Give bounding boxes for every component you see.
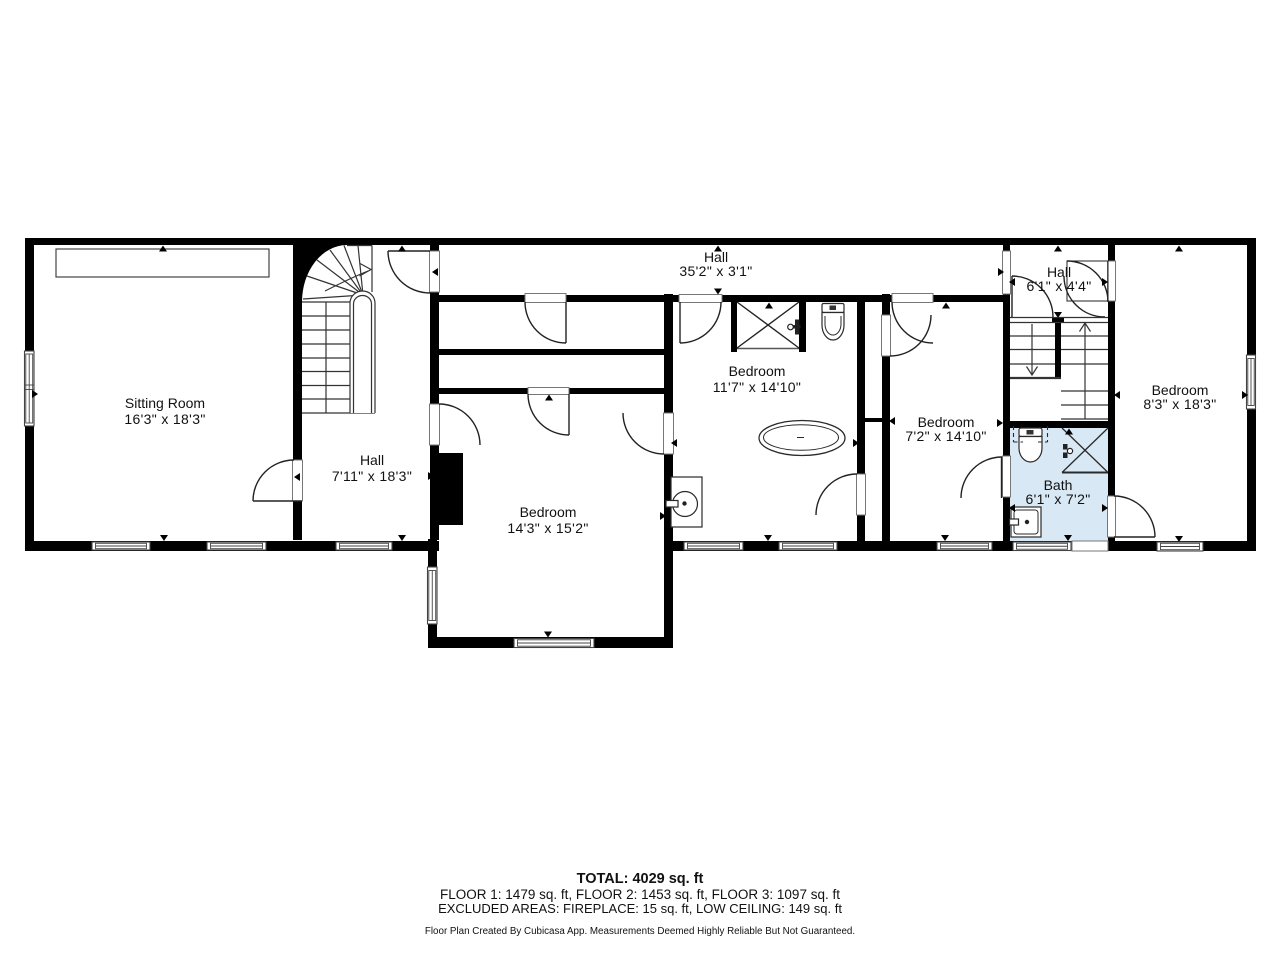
svg-text:14'3" x 15'2": 14'3" x 15'2" xyxy=(507,520,588,536)
svg-text:Hall: Hall xyxy=(360,452,384,468)
svg-text:16'3" x 18'3": 16'3" x 18'3" xyxy=(124,411,205,427)
svg-text:35'2" x 3'1": 35'2" x 3'1" xyxy=(679,263,752,279)
svg-text:7'2" x 14'10": 7'2" x 14'10" xyxy=(905,428,986,444)
svg-text:TOTAL: 4029 sq. ft: TOTAL: 4029 sq. ft xyxy=(577,871,704,887)
svg-text:EXCLUDED AREAS: FIREPLACE: 15: EXCLUDED AREAS: FIREPLACE: 15 sq. ft, LO… xyxy=(438,901,842,916)
svg-text:Bedroom: Bedroom xyxy=(520,504,577,520)
svg-text:11'7" x 14'10": 11'7" x 14'10" xyxy=(713,379,801,395)
svg-text:Bedroom: Bedroom xyxy=(729,363,786,379)
svg-text:8'3" x 18'3": 8'3" x 18'3" xyxy=(1143,396,1216,412)
svg-text:7'11" x 18'3": 7'11" x 18'3" xyxy=(332,468,412,484)
svg-text:6'1" x 4'4": 6'1" x 4'4" xyxy=(1026,278,1091,294)
svg-text:Sitting Room: Sitting Room xyxy=(125,395,205,411)
svg-text:Floor Plan Created By Cubicasa: Floor Plan Created By Cubicasa App. Meas… xyxy=(425,926,855,937)
svg-text:6'1" x 7'2": 6'1" x 7'2" xyxy=(1025,491,1090,507)
svg-text:FLOOR 1: 1479 sq. ft, FLOOR 2:: FLOOR 1: 1479 sq. ft, FLOOR 2: 1453 sq. … xyxy=(440,887,840,902)
